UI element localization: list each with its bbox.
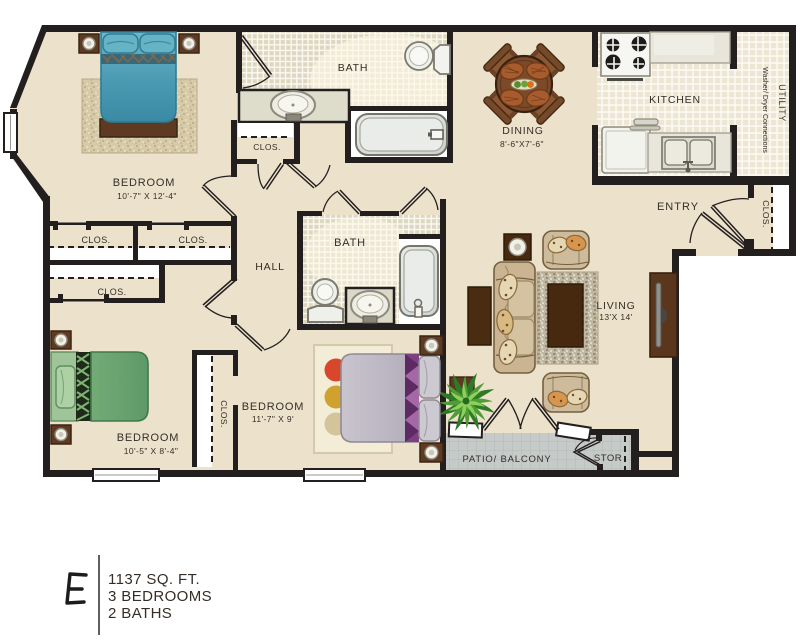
svg-text:CLOS.: CLOS. bbox=[253, 142, 281, 152]
svg-text:UTILITY: UTILITY bbox=[777, 84, 787, 122]
svg-text:CLOS.: CLOS. bbox=[178, 235, 207, 245]
svg-text:STOR: STOR bbox=[594, 453, 622, 464]
svg-text:BEDROOM: BEDROOM bbox=[242, 401, 304, 413]
svg-text:CLOS.: CLOS. bbox=[219, 400, 229, 428]
svg-text:LIVING: LIVING bbox=[596, 300, 635, 312]
svg-text:KITCHEN: KITCHEN bbox=[649, 94, 701, 106]
svg-text:3 BEDROOMS: 3 BEDROOMS bbox=[108, 588, 212, 605]
svg-text:ENTRY: ENTRY bbox=[657, 201, 699, 213]
svg-text:13'X 14': 13'X 14' bbox=[599, 312, 632, 322]
svg-text:HALL: HALL bbox=[255, 261, 284, 273]
svg-text:CLOS.: CLOS. bbox=[81, 235, 110, 245]
svg-text:CLOS.: CLOS. bbox=[97, 287, 126, 297]
svg-text:Washer/ Dryer Connections: Washer/ Dryer Connections bbox=[761, 67, 768, 153]
svg-text:BEDROOM: BEDROOM bbox=[113, 177, 175, 189]
svg-text:10'-7" X 12'-4": 10'-7" X 12'-4" bbox=[117, 191, 177, 201]
svg-text:11'-7" X 9': 11'-7" X 9' bbox=[252, 414, 294, 424]
svg-text:2 BATHS: 2 BATHS bbox=[108, 605, 172, 622]
svg-text:8'-6"X7'-6": 8'-6"X7'-6" bbox=[500, 139, 544, 149]
svg-text:BEDROOM: BEDROOM bbox=[117, 432, 179, 444]
svg-text:PATIO/ BALCONY: PATIO/ BALCONY bbox=[463, 454, 552, 465]
svg-text:10'-5" X 8'-4": 10'-5" X 8'-4" bbox=[124, 446, 179, 456]
svg-text:1137 SQ. FT.: 1137 SQ. FT. bbox=[108, 571, 200, 588]
svg-text:BATH: BATH bbox=[338, 62, 368, 74]
svg-text:DINING: DINING bbox=[502, 125, 544, 137]
svg-text:BATH: BATH bbox=[334, 237, 366, 249]
svg-text:CLOS.: CLOS. bbox=[761, 200, 771, 228]
